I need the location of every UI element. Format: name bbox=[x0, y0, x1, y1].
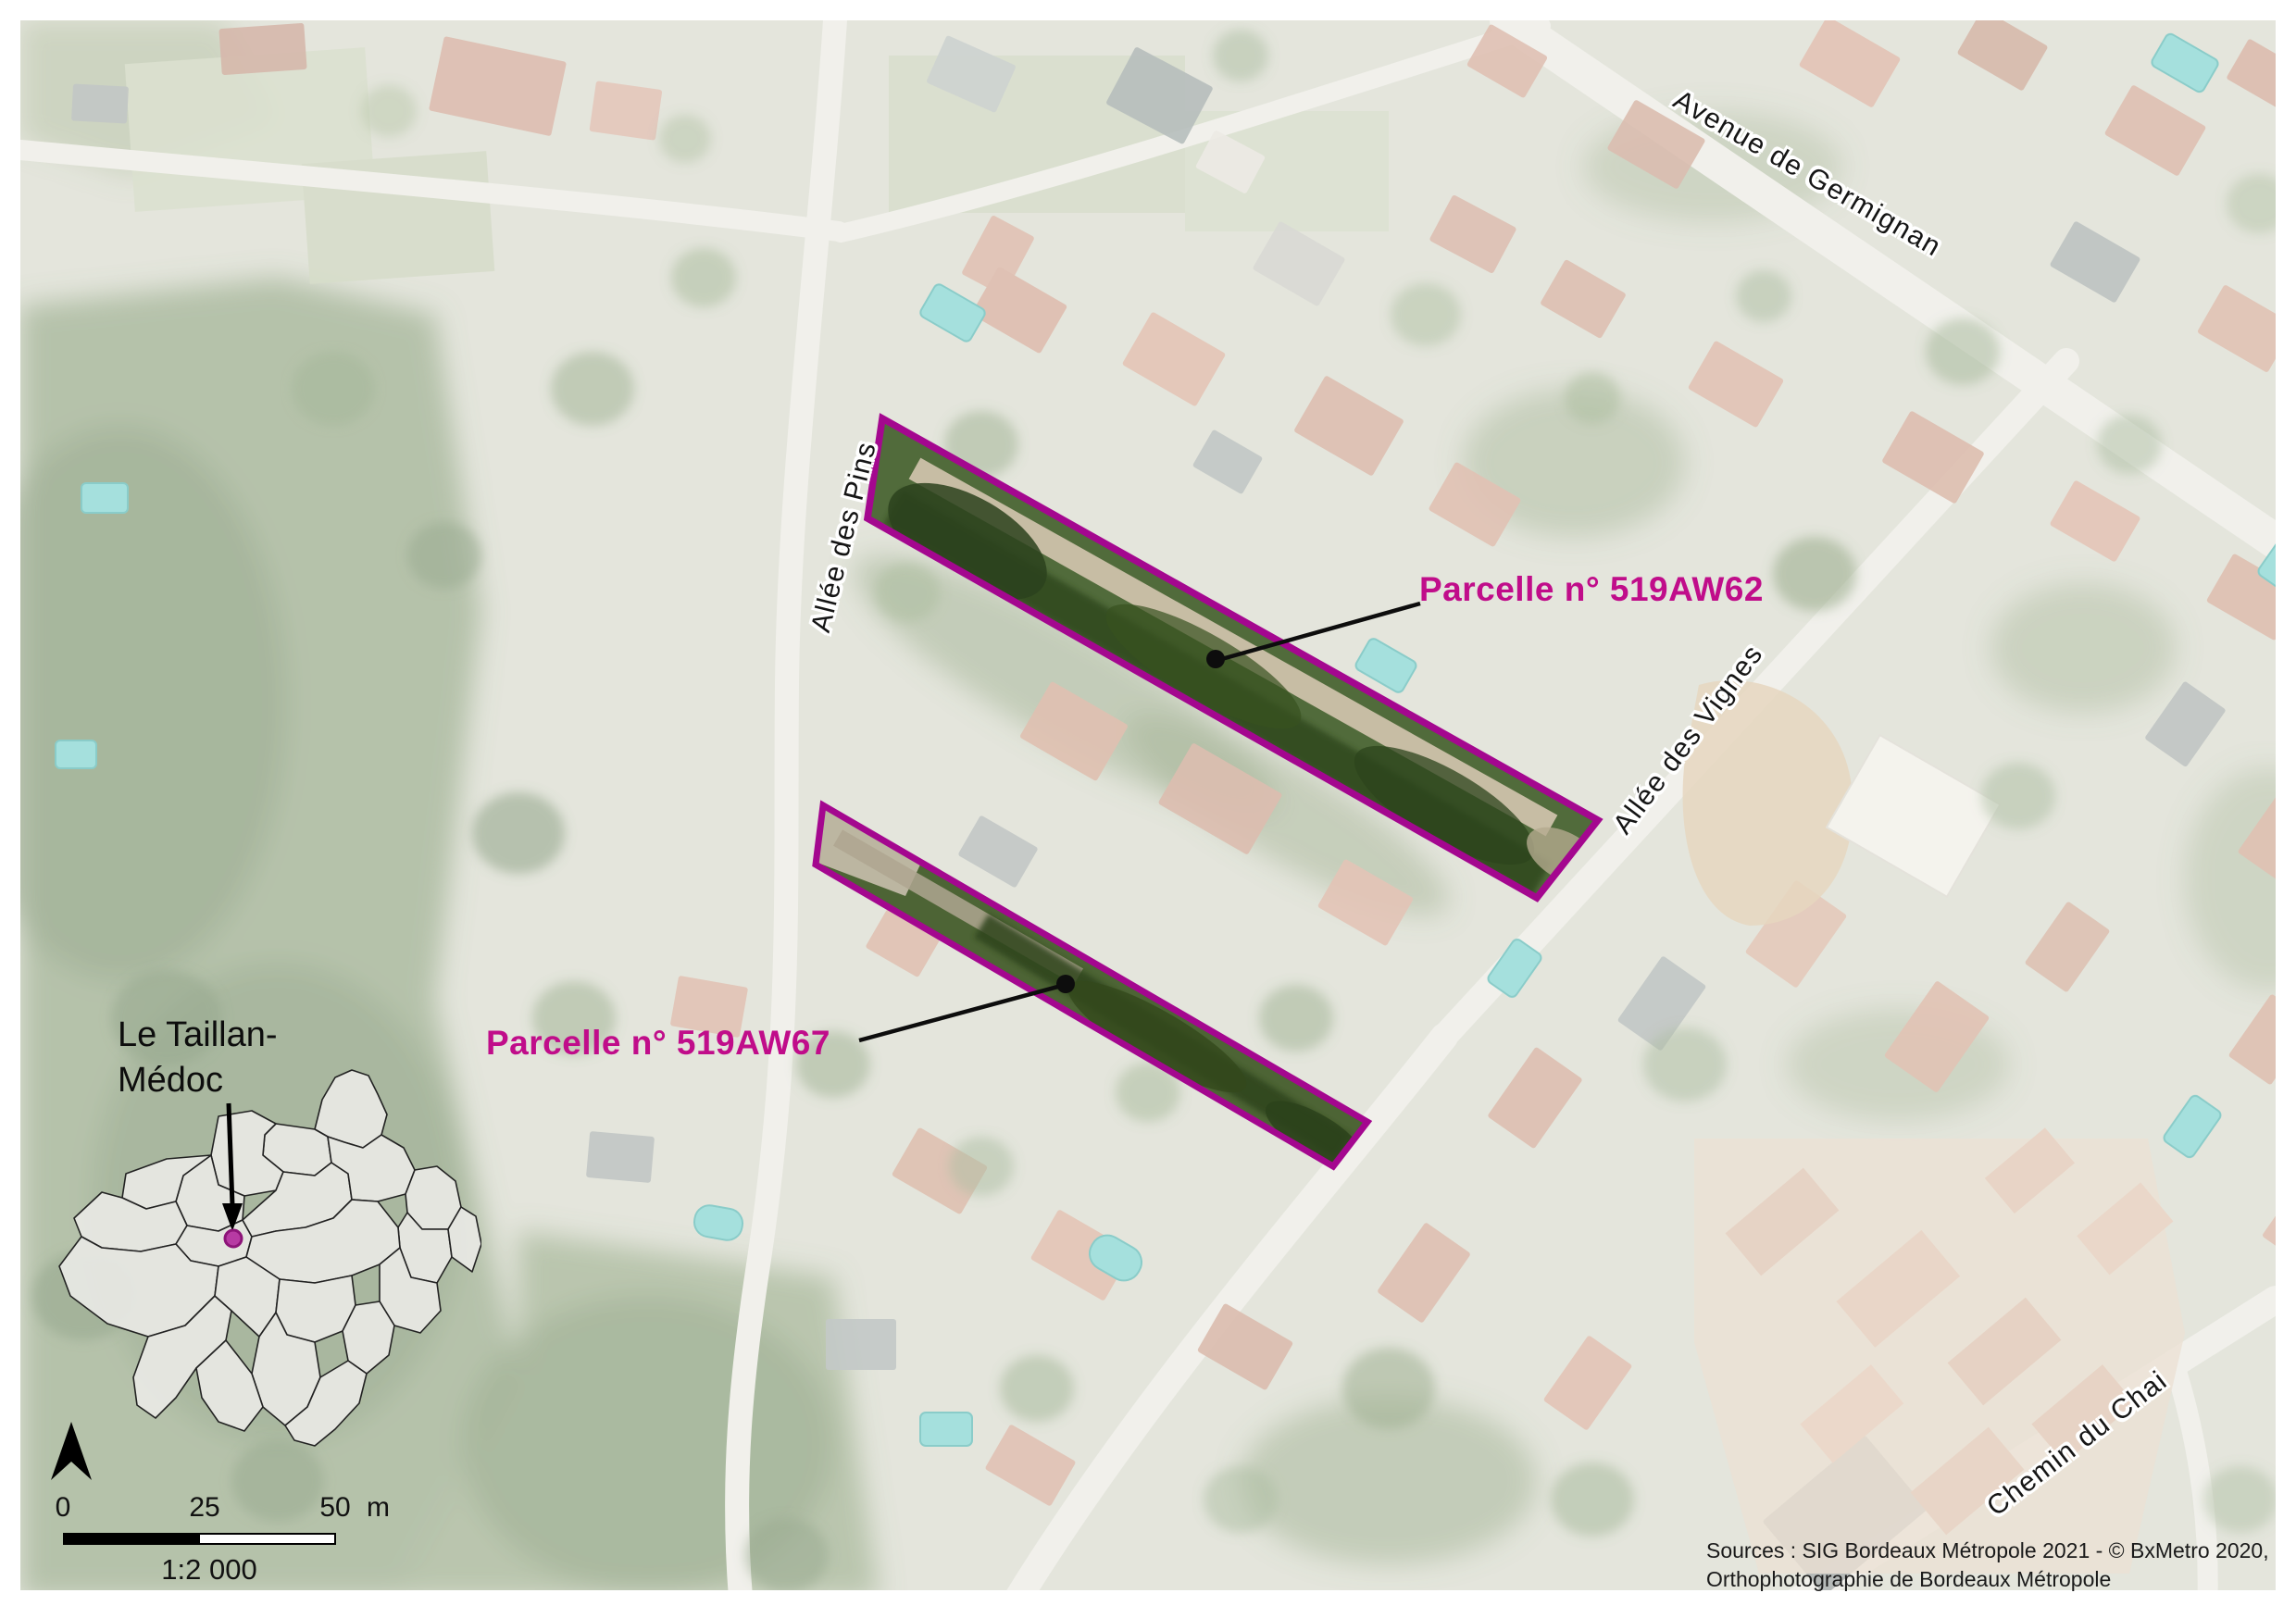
scalebar-tick-0: 0 bbox=[56, 1492, 71, 1524]
credits-line2: Orthophotographie de Bordeaux Métropole bbox=[1706, 1565, 2269, 1594]
aerial-basemap bbox=[20, 20, 2276, 1590]
map-credits: Sources : SIG Bordeaux Métropole 2021 - … bbox=[1706, 1537, 2269, 1594]
scalebar-tick-50: 50 bbox=[319, 1492, 350, 1524]
scalebar-tick-25: 25 bbox=[189, 1492, 219, 1524]
map-page: { "map": { "streets": { "germignan": "Av… bbox=[0, 0, 2296, 1618]
parcel-label-519AW67: Parcelle n° 519AW67 bbox=[486, 1024, 830, 1063]
parcel-label-519AW62: Parcelle n° 519AW62 bbox=[1419, 570, 1764, 609]
orthophoto-map bbox=[20, 20, 2276, 1590]
scalebar bbox=[63, 1533, 336, 1545]
inset-commune-label: Le Taillan- Médoc bbox=[118, 1013, 278, 1104]
credits-line1: Sources : SIG Bordeaux Métropole 2021 - … bbox=[1706, 1537, 2269, 1565]
inset-commune-label-line2: Médoc bbox=[118, 1058, 278, 1103]
scalebar-black-half bbox=[65, 1535, 200, 1543]
scale-ratio: 1:2 000 bbox=[161, 1553, 256, 1587]
inset-commune-label-line1: Le Taillan- bbox=[118, 1013, 278, 1058]
white-wash-overlay bbox=[20, 20, 2276, 1590]
scalebar-unit: m bbox=[367, 1492, 390, 1524]
